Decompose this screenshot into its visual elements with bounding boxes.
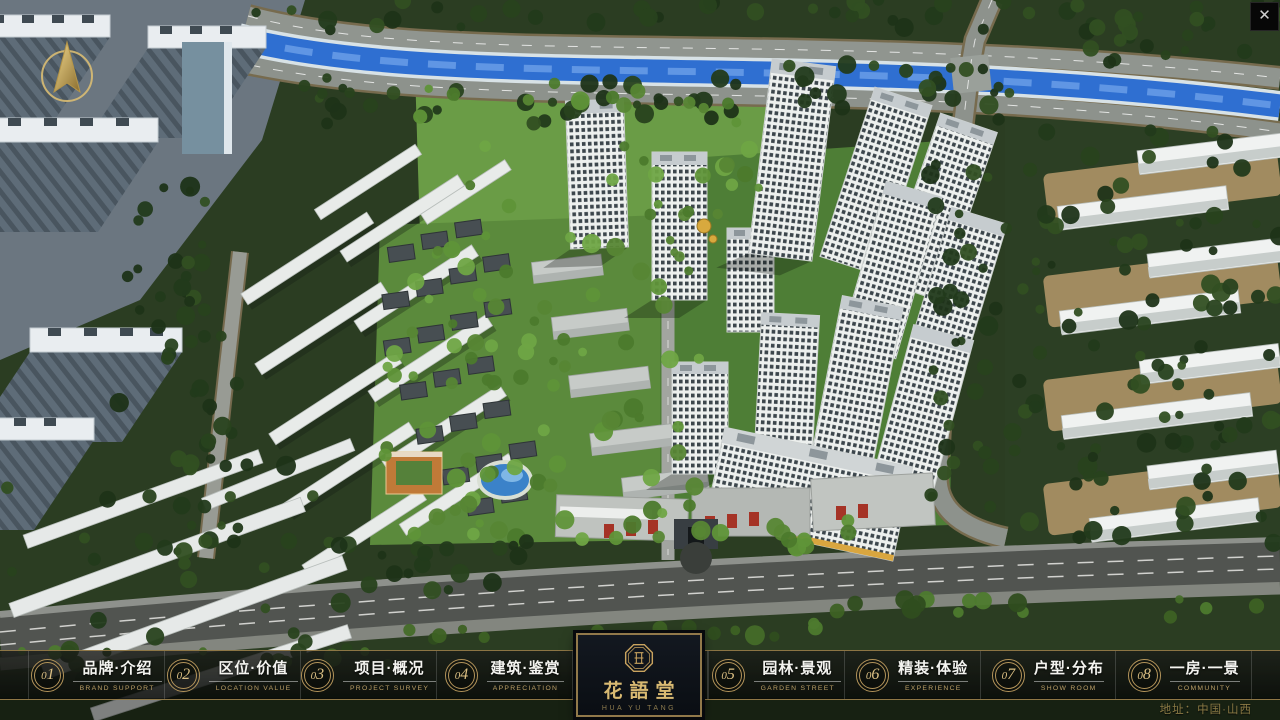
logo-name: 花語堂	[596, 676, 681, 703]
nav-badge: 04	[445, 659, 478, 692]
nav-label-zh: 精装·体验	[898, 657, 968, 678]
nav-item-views[interactable]: 08 一房·一景 COMMUNITY	[1115, 651, 1252, 699]
nav-label-zh: 建筑·鉴赏	[491, 657, 561, 678]
nav-item-brand[interactable]: 01 品牌·介绍 BRAND SUPPORT	[28, 651, 164, 699]
nav-label-en: EXPERIENCE	[905, 684, 962, 692]
nav-label-zh: 品牌·介绍	[82, 657, 152, 678]
address-text: 地址：中国·山西	[1160, 701, 1252, 717]
nav-badge: 07	[992, 659, 1025, 692]
nav-label-en: COMMUNITY	[1178, 684, 1231, 692]
nav-item-interior[interactable]: 06 精装·体验 EXPERIENCE	[844, 651, 980, 699]
logo-caption: HUA YU TANG	[602, 705, 676, 712]
nav-label-en: PROJECT SURVEY	[350, 684, 429, 692]
nav-label-en: BRAND SUPPORT	[80, 684, 155, 692]
nav-number: 03	[311, 667, 325, 683]
nav-label-en: GARDEN STREET	[760, 684, 834, 692]
nav-item-project[interactable]: 03 项目·概况 PROJECT SURVEY	[300, 651, 436, 699]
nav-item-floorplan[interactable]: 07 户型·分布 SHOW ROOM	[980, 651, 1116, 699]
nav-number: 06	[866, 667, 880, 683]
nav-number: 04	[455, 667, 469, 683]
nav-label-en: APPRECIATION	[493, 684, 558, 692]
nav-divider	[73, 681, 161, 682]
close-button[interactable]: ✕	[1250, 2, 1279, 31]
nav-badge: 05	[712, 659, 745, 692]
nav-group-left: 01 品牌·介绍 BRAND SUPPORT 02 区位·价值 LOCATION…	[28, 651, 572, 699]
nav-label-en: LOCATION VALUE	[216, 684, 292, 692]
aerial-map[interactable]	[0, 0, 1280, 720]
nav-label-zh: 园林·景观	[762, 657, 832, 678]
nav-group-right: 05 园林·景观 GARDEN STREET 06 精装·体验 EXPERIEN…	[708, 651, 1252, 699]
nav-divider	[487, 681, 564, 682]
nav-badge: 06	[856, 659, 889, 692]
nav-label-zh: 项目·概况	[354, 657, 424, 678]
nav-divider	[1170, 681, 1240, 682]
nav-divider	[754, 681, 842, 682]
nav-label-en: SHOW ROOM	[1041, 684, 1097, 692]
nav-badge: 08	[1128, 659, 1161, 692]
nav-badge: 01	[31, 659, 64, 692]
compass-icon	[34, 36, 100, 106]
nav-item-location[interactable]: 02 区位·价值 LOCATION VALUE	[164, 651, 300, 699]
compass-north-indicator	[34, 36, 100, 106]
logo-seal-icon	[623, 642, 655, 674]
nav-label-zh: 区位·价值	[218, 657, 288, 678]
nav-number: 02	[177, 667, 191, 683]
nav-divider	[209, 681, 298, 682]
nav-item-garden[interactable]: 05 园林·景观 GARDEN STREET	[708, 651, 844, 699]
nav-divider	[1034, 681, 1104, 682]
nav-label-zh: 户型·分布	[1034, 657, 1104, 678]
clubhouse	[386, 452, 442, 494]
nav-label-zh: 一房·一景	[1170, 657, 1240, 678]
nav-number: 05	[721, 667, 735, 683]
nav-badge: 03	[301, 659, 334, 692]
nav-badge: 02	[167, 659, 200, 692]
nav-divider	[343, 681, 436, 682]
nav-divider	[898, 681, 968, 682]
logo-panel[interactable]: 花語堂 HUA YU TANG	[576, 633, 702, 717]
nav-number: 01	[41, 667, 55, 683]
presentation-screen: ✕ 01 品牌·介绍 BRAND SUPPORT 02 区位·价值 LOCATI…	[0, 0, 1280, 720]
nav-number: 07	[1002, 667, 1016, 683]
nav-number: 08	[1137, 667, 1151, 683]
nav-item-architecture[interactable]: 04 建筑·鉴赏 APPRECIATION	[436, 651, 572, 699]
